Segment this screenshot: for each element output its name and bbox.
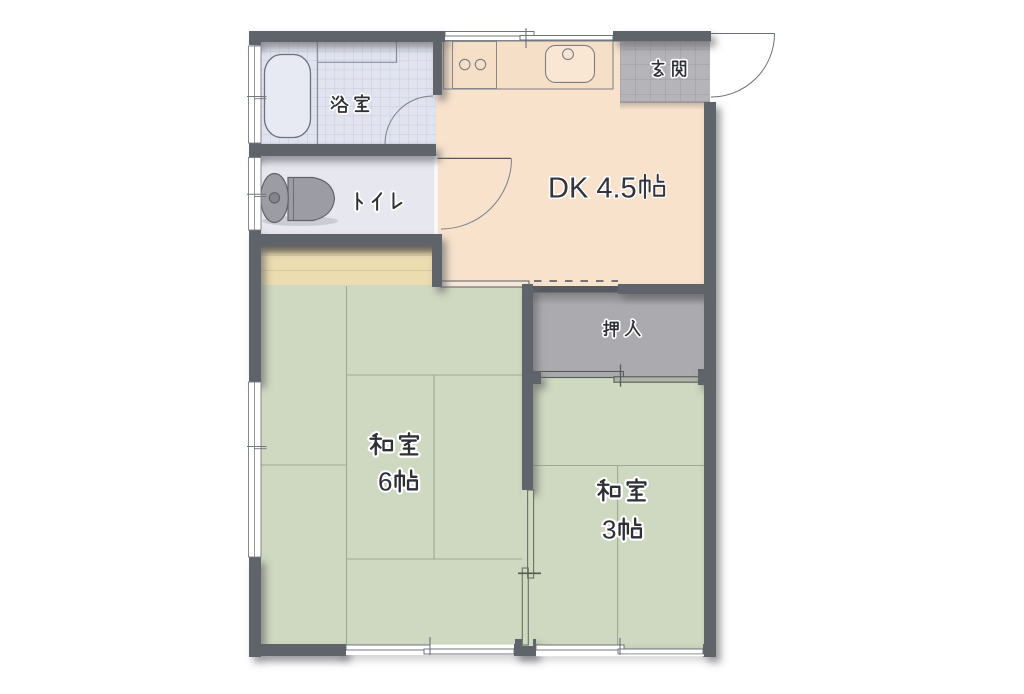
- svg-text:6: 6: [378, 466, 392, 496]
- svg-text:3: 3: [602, 514, 616, 544]
- svg-text:DK 4.5: DK 4.5: [548, 173, 637, 205]
